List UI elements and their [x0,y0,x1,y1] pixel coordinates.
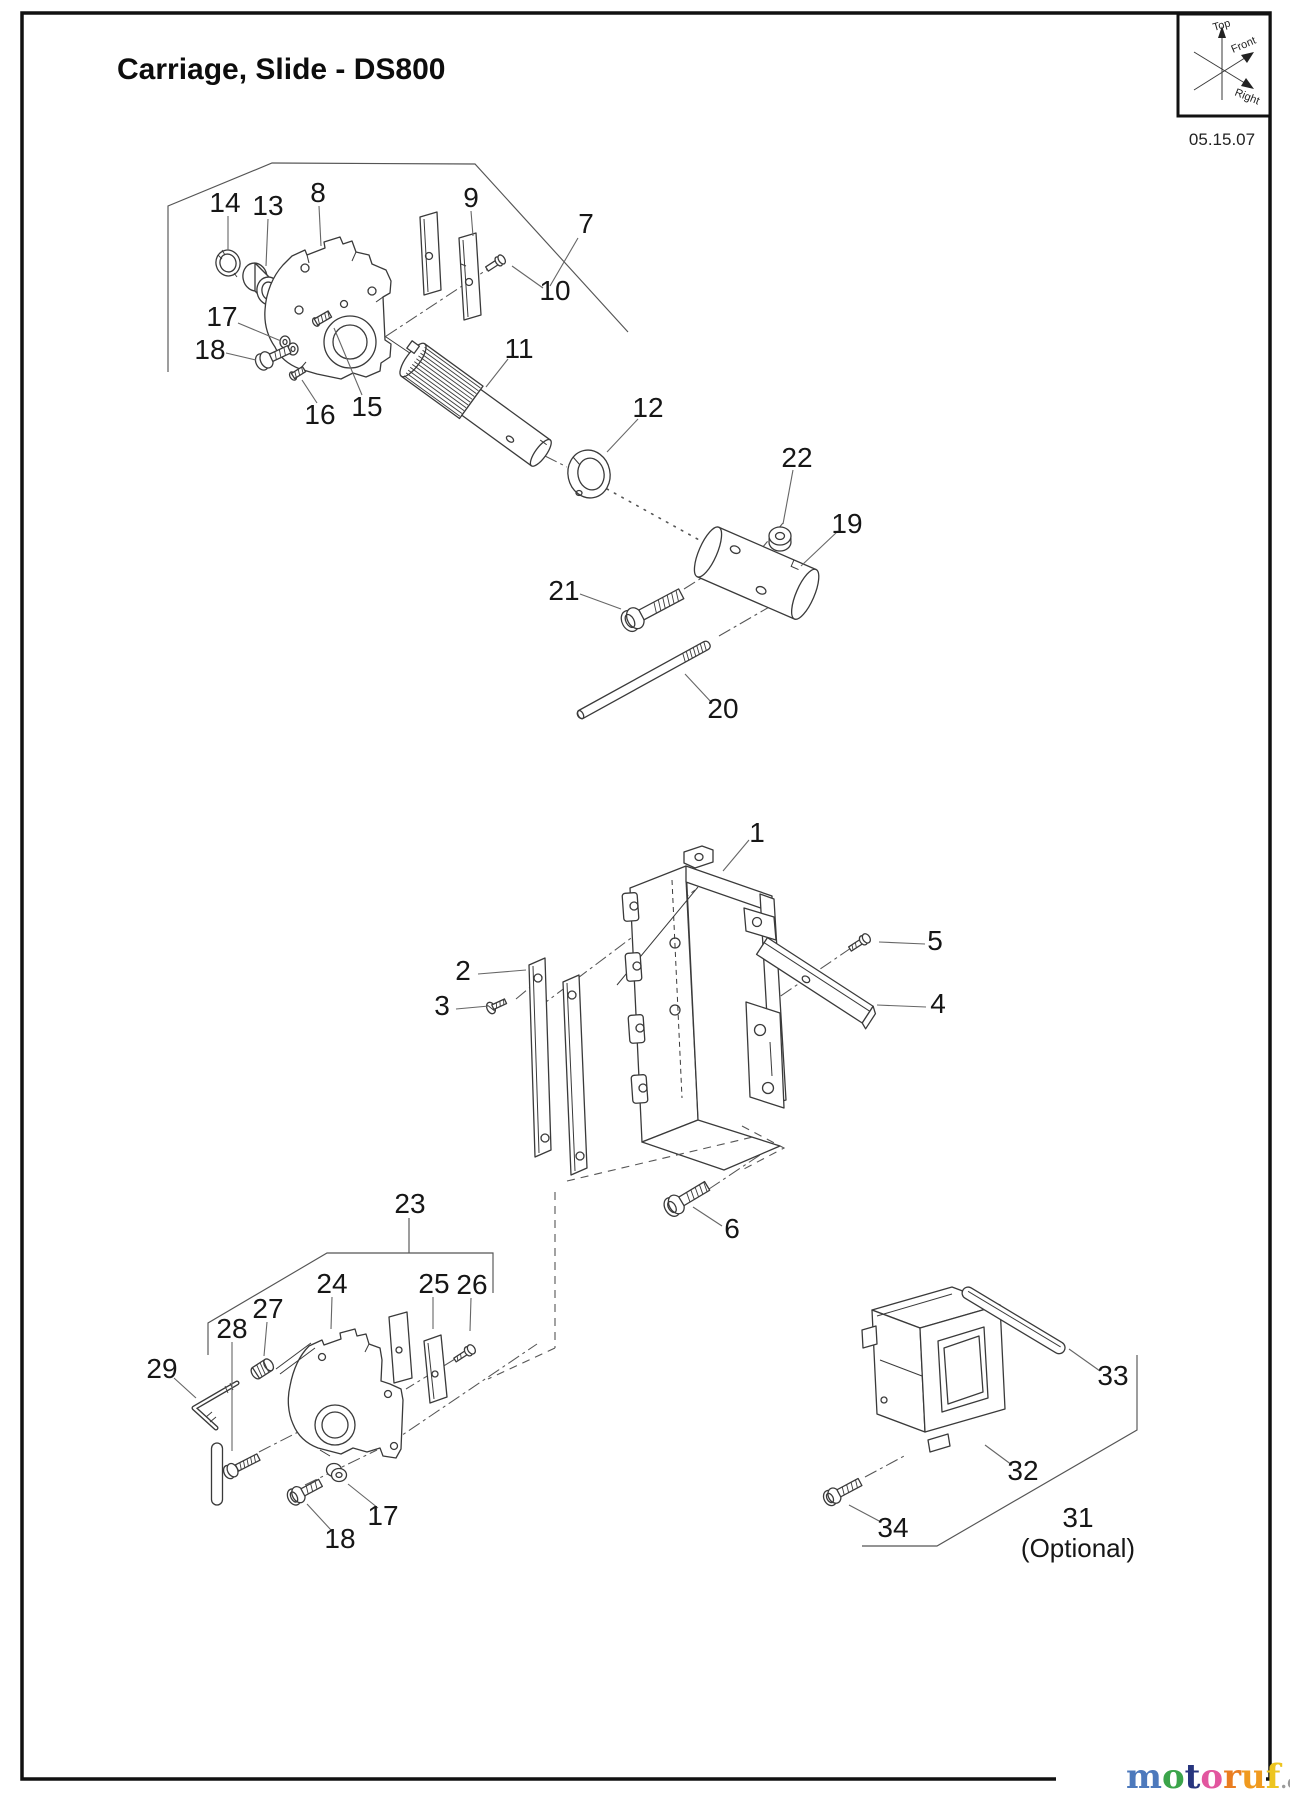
part-18-bolt-bottom [285,1475,325,1507]
part-label-17-top: 17 [206,301,237,332]
part-label-15: 15 [351,391,382,422]
part-29-l-rod [194,1383,237,1428]
part-24-housing [288,1312,412,1458]
part-label-34: 34 [877,1512,908,1543]
part-label-3: 3 [434,990,450,1021]
part-5-screw [847,932,872,953]
part-3-screw [485,996,508,1015]
part-22-nut [769,527,791,551]
part-label-7: 7 [578,208,594,239]
part-label-18-top: 18 [194,334,225,365]
part-label-4: 4 [930,988,946,1019]
part-label-17-bottom: 17 [367,1500,398,1531]
part-label-22: 22 [781,442,812,473]
part-label-23: 23 [394,1188,425,1219]
page-title: Carriage, Slide - DS800 [117,53,445,86]
part-6-bolt [661,1177,712,1219]
part-28-pin [212,1443,223,1505]
part-28-bolt [221,1451,261,1481]
part-label-19: 19 [831,508,862,539]
part-label-6: 6 [724,1213,740,1244]
part-label-16: 16 [304,399,335,430]
part-label-13: 13 [252,190,283,221]
revision-date: 05.15.07 [1189,130,1255,149]
part-label-10: 10 [539,275,570,306]
part-label-5: 5 [927,925,943,956]
part-label-24: 24 [316,1268,347,1299]
part-label-31: 31 [1062,1502,1093,1533]
part-32-block [862,1287,1005,1452]
part-12-collar [563,446,614,502]
part-14-ring [213,247,243,278]
part-label-14: 14 [209,187,240,218]
part-label-2: 2 [455,955,471,986]
part-label-29: 29 [146,1353,177,1384]
axes-optional [865,1455,906,1477]
page: { "page": { "title": "Carriage, Slide - … [0,0,1290,1800]
part-label-27: 27 [252,1293,283,1324]
orientation-compass: Top Front Right [1178,14,1270,116]
part-label-32: 32 [1007,1455,1038,1486]
part-label-18-bottom: 18 [324,1523,355,1554]
part-20-rod [576,640,712,720]
part-label-12: 12 [632,392,663,423]
part-10-screw [484,254,507,274]
part-label-11: 11 [504,333,533,364]
part-label-26: 26 [456,1269,487,1300]
part-2-gib-strips [529,958,587,1175]
part-label-8: 8 [310,177,326,208]
part-21-bolt [618,584,687,634]
watermark: motoruf.de [1056,1757,1290,1797]
part-label-21: 21 [548,575,579,606]
part-label-25: 25 [418,1268,449,1299]
part-label-1: 1 [749,817,765,848]
watermark-logo: motoruf.de [1126,1757,1290,1797]
part-label-9: 9 [463,182,479,213]
part-label-20: 20 [707,693,738,724]
part-1-carriage [617,846,786,1170]
parts-diagram: Top Front Right Carriage, Slide - DS800 … [0,0,1290,1800]
part-25-plate [424,1335,447,1403]
part-label-optional-note: (Optional) [1021,1533,1135,1563]
part-34-screw [821,1475,864,1508]
part-label-33: 33 [1097,1360,1128,1391]
part-label-28: 28 [216,1313,247,1344]
part-26-screw [452,1343,477,1364]
part-8-housing [265,237,391,379]
part-19-trunnion [689,524,824,623]
